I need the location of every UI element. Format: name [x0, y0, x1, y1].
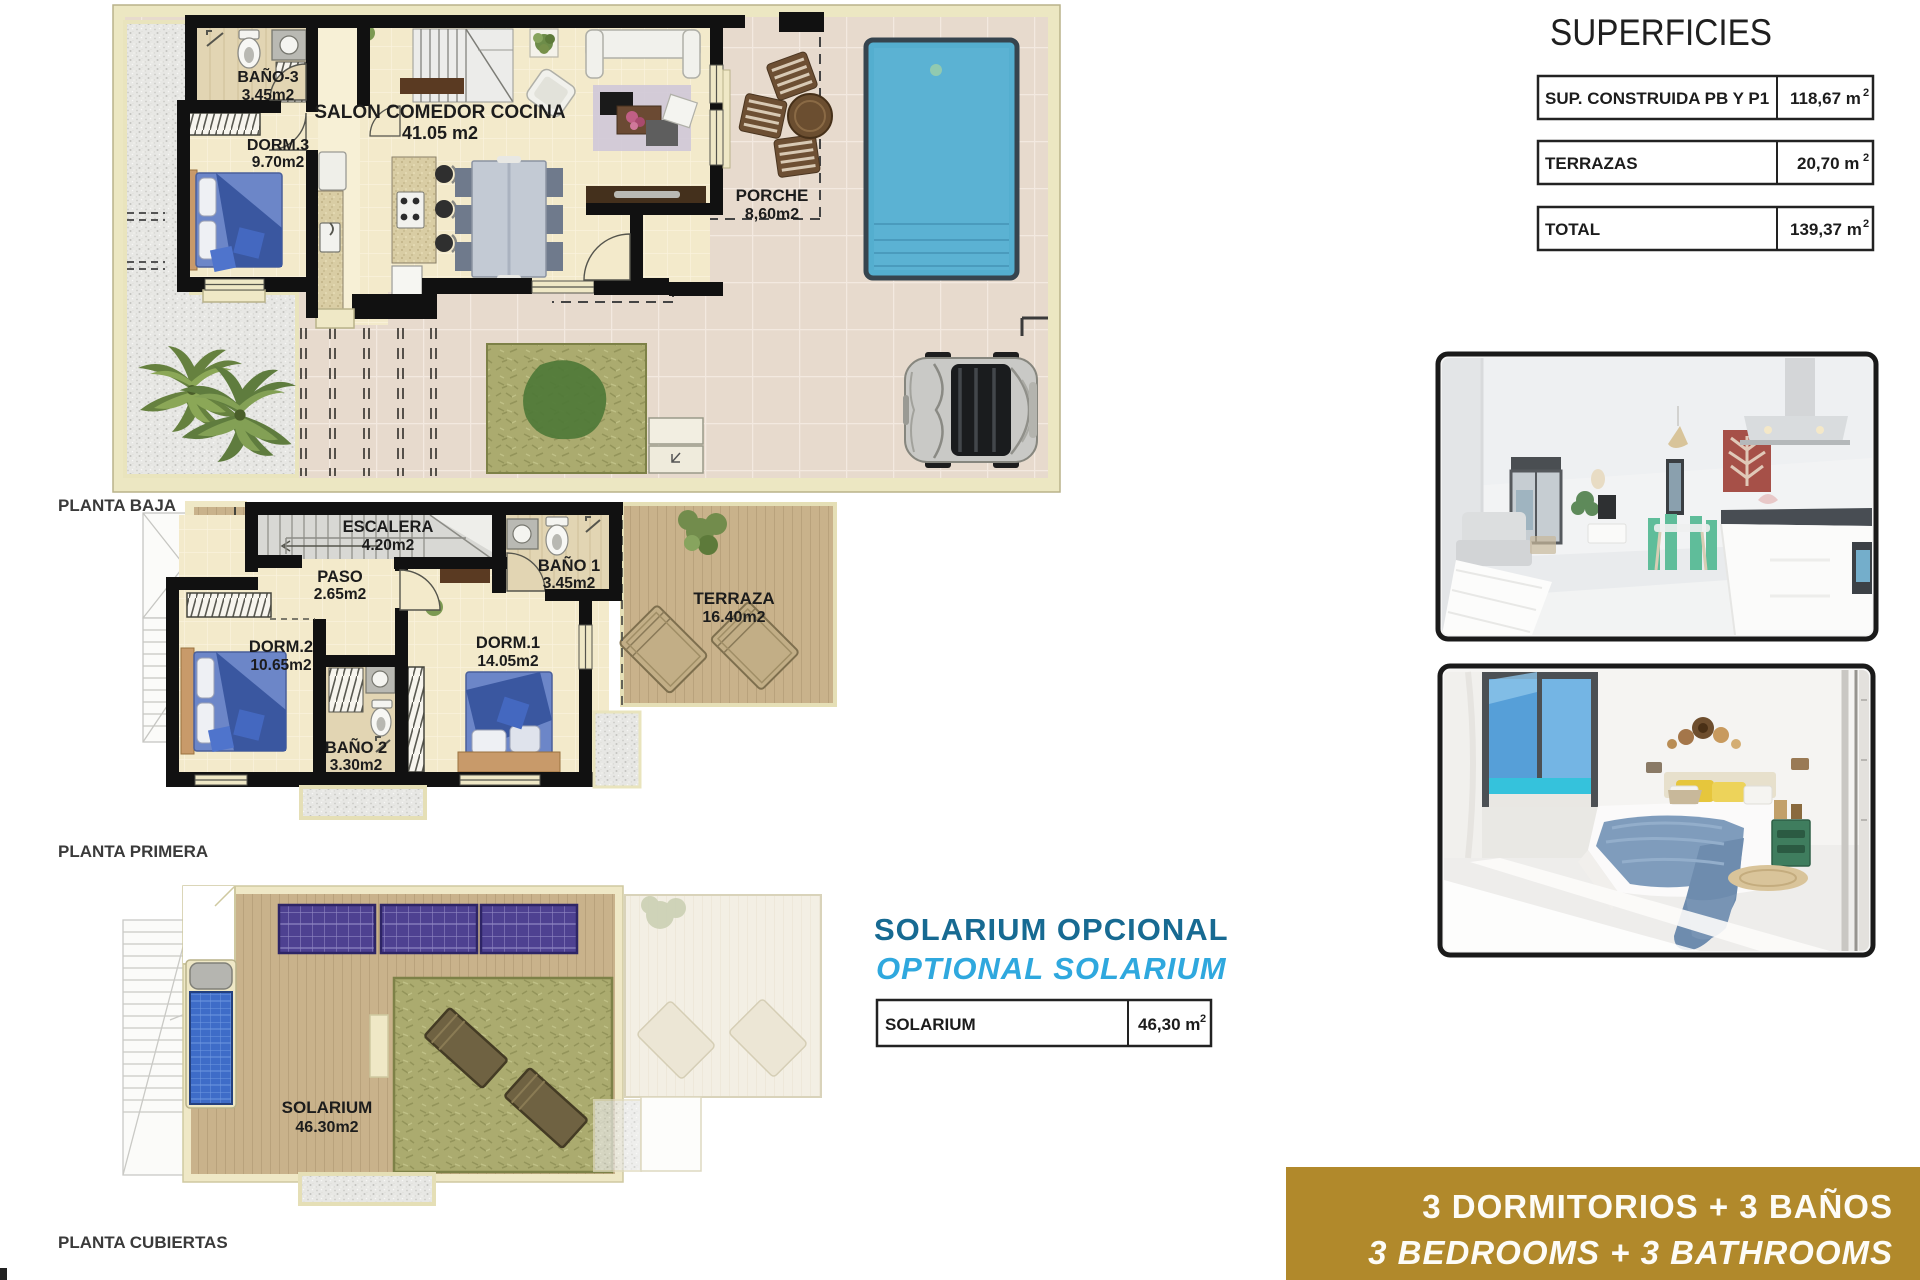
svg-text:SOLARIUM: SOLARIUM — [282, 1098, 373, 1117]
svg-text:DORM.2: DORM.2 — [249, 638, 313, 656]
svg-text:PASO: PASO — [317, 568, 363, 586]
svg-text:3.45m2: 3.45m2 — [242, 87, 295, 104]
svg-text:46.30m2: 46.30m2 — [295, 1119, 358, 1136]
svg-text:PLANTA CUBIERTAS: PLANTA CUBIERTAS — [58, 1233, 228, 1252]
svg-text:41.05 m2: 41.05 m2 — [402, 123, 478, 143]
svg-text:2: 2 — [1863, 152, 1869, 164]
svg-text:TERRAZA: TERRAZA — [693, 589, 774, 608]
svg-text:PLANTA BAJA: PLANTA BAJA — [58, 496, 176, 515]
svg-text:118,67 m: 118,67 m — [1790, 89, 1861, 108]
svg-text:BAÑO 1: BAÑO 1 — [538, 555, 600, 575]
svg-text:139,37 m: 139,37 m — [1790, 220, 1862, 239]
svg-text:46,30 m: 46,30 m — [1138, 1015, 1200, 1034]
svg-text:9.70m2: 9.70m2 — [252, 154, 305, 171]
svg-text:20,70 m: 20,70 m — [1797, 154, 1859, 173]
svg-text:16.40m2: 16.40m2 — [702, 609, 765, 626]
svg-text:2: 2 — [1863, 87, 1869, 99]
svg-text:SALON COMEDOR COCINA: SALON COMEDOR COCINA — [314, 102, 566, 123]
svg-text:DORM.1: DORM.1 — [476, 634, 540, 652]
svg-text:DORM.3: DORM.3 — [247, 137, 309, 154]
svg-text:PORCHE: PORCHE — [736, 186, 809, 205]
svg-text:3.30m2: 3.30m2 — [330, 757, 383, 774]
svg-text:3 DORMITORIOS + 3 BAÑOS: 3 DORMITORIOS + 3 BAÑOS — [1422, 1188, 1893, 1225]
svg-text:BAÑO-3: BAÑO-3 — [237, 66, 298, 86]
svg-text:2.65m2: 2.65m2 — [314, 586, 367, 603]
svg-text:10.65m2: 10.65m2 — [250, 657, 311, 674]
svg-text:PLANTA PRIMERA: PLANTA PRIMERA — [58, 842, 208, 861]
svg-text:4.20m2: 4.20m2 — [362, 537, 415, 554]
svg-text:2: 2 — [1200, 1013, 1206, 1025]
svg-text:BAÑO 2: BAÑO 2 — [325, 737, 387, 757]
svg-text:8,60m2: 8,60m2 — [745, 206, 799, 223]
svg-text:3 BEDROOMS + 3 BATHROOMS: 3 BEDROOMS + 3 BATHROOMS — [1368, 1234, 1893, 1271]
svg-text:TERRAZAS: TERRAZAS — [1545, 154, 1638, 173]
svg-text:SUP. CONSTRUIDA PB Y P1: SUP. CONSTRUIDA PB Y P1 — [1545, 89, 1769, 108]
svg-text:3.45m2: 3.45m2 — [543, 575, 596, 592]
svg-text:14.05m2: 14.05m2 — [477, 653, 538, 670]
svg-text:2: 2 — [1863, 218, 1869, 230]
svg-text:SOLARIUM: SOLARIUM — [885, 1015, 976, 1034]
svg-text:TOTAL: TOTAL — [1545, 220, 1600, 239]
svg-text:OPTIONAL SOLARIUM: OPTIONAL SOLARIUM — [876, 951, 1227, 986]
svg-text:SUPERFICIES: SUPERFICIES — [1550, 12, 1772, 53]
svg-text:SOLARIUM OPCIONAL: SOLARIUM OPCIONAL — [874, 912, 1229, 947]
svg-text:ESCALERA: ESCALERA — [343, 518, 434, 536]
